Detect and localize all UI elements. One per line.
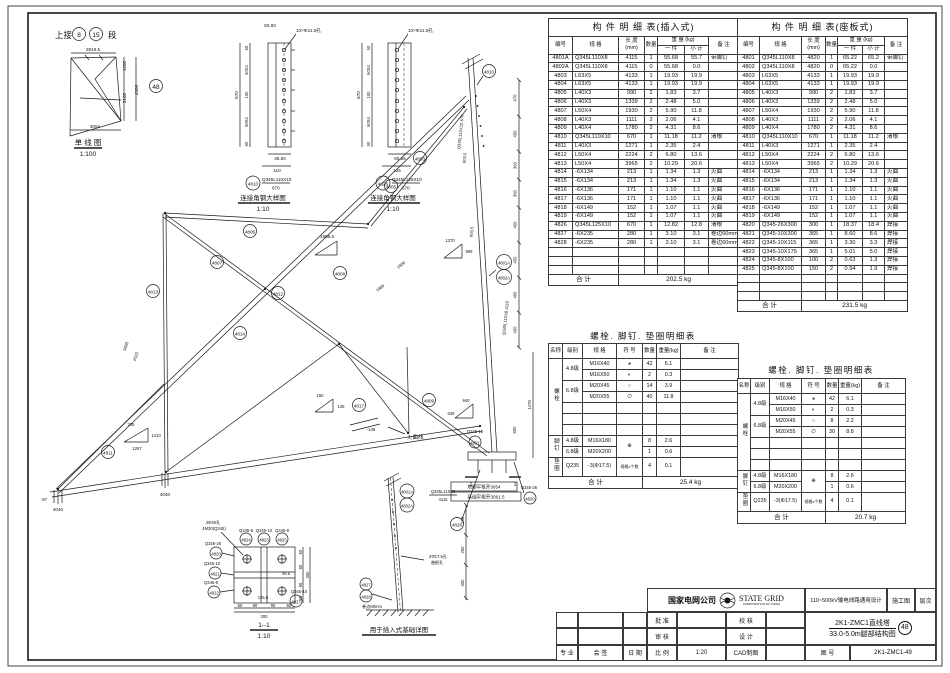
view-title: 单 线 图 <box>75 137 102 147</box>
svg-text:2Φ17.5孔: 2Φ17.5孔 <box>429 553 448 560</box>
table-row: 4806 L40X3 1339 2 2.48 5.0 <box>738 98 908 107</box>
bolt-symbol-icon: ○ <box>802 416 826 427</box>
foot-span-label: 塔脚平根开3054 <box>467 484 501 491</box>
cell-note: 火曲 <box>709 204 739 213</box>
svg-text:1869.5: 1869.5 <box>320 234 334 239</box>
svg-text:1800: 1800 <box>396 260 407 270</box>
table-row: 4801 Q345L110X8 4820 1 65.22 65.2 带脚钉 <box>738 54 908 63</box>
cell-note <box>709 142 739 151</box>
cell-weight-one: 18.37 <box>838 221 863 230</box>
svg-text:300: 300 <box>261 614 269 619</box>
cell-no: 4814 <box>738 168 760 177</box>
cell-weight-sub: 19.9 <box>685 72 709 81</box>
cell-note <box>709 63 739 72</box>
cell-qty: 1 <box>826 212 838 221</box>
review-label: 审 核 <box>647 628 677 644</box>
cell-note: 带脚钉 <box>885 54 908 63</box>
cell-no <box>738 283 760 292</box>
cell-qty: 1 <box>645 168 658 177</box>
table-row: 4817 -6X136 171 1 1.10 1.1 火曲 <box>549 195 739 204</box>
svg-text:Q345L110X8: Q345L110X8 <box>431 489 456 494</box>
cell-length: 4820 <box>802 63 826 72</box>
cell-spec: L40X4 <box>760 124 802 133</box>
cell-length: 3965 <box>619 160 645 169</box>
table-row: 4808 L40X3 1111 2 2.06 4.1 <box>738 116 908 125</box>
svg-text:60X4: 60X4 <box>244 116 249 126</box>
col-header: 规 格 <box>770 379 802 394</box>
cell-qty: 2 <box>645 107 658 116</box>
svg-text:4803: 4803 <box>415 157 426 162</box>
bolt-symbol-icon: ∅ <box>802 427 826 438</box>
cell-weight-sub: 11.8 <box>863 107 885 116</box>
cell-no: 4818 <box>738 204 760 213</box>
table-row: 4806 L40X3 1339 2 2.48 5.0 <box>549 98 739 107</box>
total-label: 合 计 <box>549 274 619 285</box>
cell-weight-one: 0.94 <box>838 265 863 274</box>
bolt-spec: M16X180 <box>583 436 617 447</box>
cell-note <box>709 248 739 257</box>
cell-qty: 2 <box>826 89 838 98</box>
cell-qty: 2 <box>645 160 658 169</box>
cell-length <box>619 248 645 257</box>
cell-weight-one: 0.63 <box>838 256 863 265</box>
svg-text:8: 8 <box>77 32 81 39</box>
cell-qty: 1 <box>645 239 658 248</box>
cell-weight-sub: 19.9 <box>863 80 885 89</box>
table-row: 4815 -6X134 213 1 1.34 1.3 火曲 <box>549 177 739 186</box>
cell-length <box>802 274 826 283</box>
cell-no: 4812 <box>738 151 760 160</box>
cell-spec: L50X4 <box>573 160 619 169</box>
cell-length: 1930 <box>619 107 645 116</box>
cell-length: 1780 <box>619 124 645 133</box>
table-row: 4802 Q345L110X8 4820 0 65.22 0.0 <box>738 63 908 72</box>
total-label: 合 计 <box>738 300 802 311</box>
table-row: 4809 L40X4 1780 2 4.31 8.6 <box>549 124 739 133</box>
svg-text:100: 100 <box>244 91 249 99</box>
svg-text:4814: 4814 <box>235 332 246 337</box>
cell-weight-sub: 1.1 <box>863 212 885 221</box>
cell-spec: -6X134 <box>760 168 802 177</box>
cell-weight-sub: 5.0 <box>863 248 885 257</box>
cell-weight-sub: 1.1 <box>685 186 709 195</box>
cell-note: 焊接 <box>885 248 908 257</box>
grade-68: 6.8级 <box>563 447 583 458</box>
cell-weight-one: 1.07 <box>838 204 863 213</box>
cell-no: 4807 <box>549 107 573 116</box>
svg-text:145: 145 <box>338 404 346 409</box>
cell-no: 4825 <box>738 265 760 274</box>
cell-weight-sub <box>863 283 885 292</box>
cell-note <box>885 151 908 160</box>
table-row: 4819 -6X149 152 1 1.07 1.1 火曲 <box>738 212 908 221</box>
foot-symbol-icon: ⊕ <box>802 471 826 493</box>
cell-length: 1271 <box>802 142 826 151</box>
sheet-label: 层次 <box>915 588 936 612</box>
svg-text:4828: 4828 <box>361 595 371 600</box>
cell-weight-one: 1.07 <box>658 204 685 213</box>
dim-label: 3054 <box>90 124 101 129</box>
cell-weight-one: 5.01 <box>838 248 863 257</box>
cell-length <box>619 256 645 265</box>
cell-qty: 1 <box>826 133 838 142</box>
cell-qty: 1 <box>826 221 838 230</box>
table-row: 4812 L50X4 2224 2 6.80 13.6 <box>549 151 739 160</box>
cell-weight-sub: 11.2 <box>685 133 709 142</box>
washer-grade: Q235 <box>563 458 583 477</box>
table-row: 4801A Q345L110X8 4115 1 55.68 55.7 带脚钉 <box>549 54 739 63</box>
cell-weight-sub: 1.1 <box>685 195 709 204</box>
cell-spec <box>573 256 619 265</box>
cell-no: 4810 <box>738 133 760 142</box>
svg-text:4825: 4825 <box>277 538 287 543</box>
cell-weight-sub: 1.1 <box>685 212 709 221</box>
cell-weight-sub <box>685 256 709 265</box>
table-row: 4817 -6X136 171 1 1.10 1.1 火曲 <box>738 195 908 204</box>
cell-note: 焊接 <box>885 230 908 239</box>
cell-weight-sub: 1.3 <box>685 168 709 177</box>
cell-length: 990 <box>802 89 826 98</box>
cell-weight-one: 10.29 <box>658 160 685 169</box>
cell-note <box>885 274 908 283</box>
cell-weight-one: 5.90 <box>838 107 863 116</box>
cell-weight-one: 2.06 <box>658 116 685 125</box>
cell-length: 4115 <box>619 54 645 63</box>
table-row: 4813 L50X4 3965 2 10.29 20.6 <box>549 160 739 169</box>
cell-note: 火曲 <box>709 168 739 177</box>
cell-weight-one: 11.18 <box>658 133 685 142</box>
group-bolt: 螺栓 <box>738 394 751 471</box>
cell-weight-sub: 1.1 <box>863 195 885 204</box>
parts-table-seat: 构 件 明 细 表(座板式) 编号 规 格 长 度(mm) 数量 重 量 (kg… <box>737 18 908 312</box>
cell-no: 4827 <box>549 230 573 239</box>
svg-text:639: 639 <box>448 411 456 416</box>
cell-spec: -6X136 <box>760 186 802 195</box>
washer-symbol: 规格x个数 <box>617 458 643 477</box>
cell-weight-sub: 5.0 <box>863 98 885 107</box>
cell-spec <box>573 248 619 257</box>
svg-text:600: 600 <box>512 426 517 434</box>
cell-qty <box>645 265 658 274</box>
cell-length: 4115 <box>619 63 645 72</box>
cell-no <box>549 265 573 274</box>
cell-weight-one: 1.07 <box>838 212 863 221</box>
group-foot: 脚钉 <box>549 436 563 458</box>
svg-text:4808: 4808 <box>335 272 346 277</box>
cell-note <box>709 80 739 89</box>
svg-text:670: 670 <box>234 91 239 99</box>
bolt-spec: M20X55 <box>583 392 617 403</box>
cell-no: 4818 <box>549 204 573 213</box>
cell-weight-one <box>838 292 863 301</box>
cell-note: 卷边60mm <box>709 230 739 239</box>
table-row: 4804 L63X5 4133 1 19.93 19.9 <box>738 80 908 89</box>
cell-note: 卷边60mm <box>709 239 739 248</box>
bolt-spec: M16X40 <box>583 359 617 370</box>
cell-length: 1339 <box>802 98 826 107</box>
cell-spec: L50X4 <box>760 151 802 160</box>
parts-seat-body: 4801 Q345L110X8 4820 1 65.22 65.2 带脚钉 48… <box>738 54 908 300</box>
cell-note <box>885 142 908 151</box>
cell-no: 4810 <box>549 133 573 142</box>
washer-spec: -3(Φ17.5) <box>770 493 802 512</box>
cell-weight-one <box>658 265 685 274</box>
col-header: 备 注 <box>681 344 739 359</box>
cell-spec: Q345-10X300 <box>760 230 802 239</box>
dim-label: 4040 <box>160 492 171 497</box>
svg-text:250: 250 <box>460 546 465 554</box>
svg-text:4821: 4821 <box>210 572 220 577</box>
cell-no: 4822 <box>738 239 760 248</box>
col-header: 长 度(mm) <box>802 37 826 55</box>
cell-spec: Q345-26X300 <box>760 221 802 230</box>
cell-note: 火曲 <box>885 204 908 213</box>
cell-qty: 1 <box>826 186 838 195</box>
cell-spec: Q345-10X175 <box>760 248 802 257</box>
cell-weight-one: 2.06 <box>838 116 863 125</box>
drawing-title-line2: 33.0-5.0m腿部结构图 <box>829 629 896 639</box>
cell-qty: 2 <box>826 160 838 169</box>
col-header: 规 格 <box>760 37 802 55</box>
svg-text:4823: 4823 <box>259 538 269 543</box>
cell-no: 4824 <box>738 256 760 265</box>
svg-text:60: 60 <box>238 603 243 608</box>
cell-spec: Q345L110X10 <box>573 133 619 142</box>
svg-text:50: 50 <box>366 141 371 146</box>
cell-spec: -6X134 <box>760 177 802 186</box>
cell-length: 4820 <box>802 54 826 63</box>
col-header: 符 号 <box>617 344 643 359</box>
cell-weight-sub: 2.4 <box>685 142 709 151</box>
cell-spec: L50X4 <box>573 151 619 160</box>
cell-note <box>885 283 908 292</box>
brand-subtitle: CORPORATION OF CHINA <box>739 603 784 606</box>
sheet-number-circle: 48 <box>898 621 912 635</box>
table-row: 4815 -6X134 213 1 1.34 1.3 火曲 <box>738 177 908 186</box>
cell-spec <box>760 274 802 283</box>
col-header: 级别 <box>563 344 583 359</box>
cell-length <box>619 265 645 274</box>
cell-spec: L50X4 <box>760 160 802 169</box>
cell-qty: 1 <box>826 248 838 257</box>
cell-weight-sub: 1.3 <box>863 256 885 265</box>
cell-qty: 1 <box>645 80 658 89</box>
table-row: 4802A Q345L110X8 4115 0 55.68 0.0 <box>549 63 739 72</box>
cell-no: 4815 <box>549 177 573 186</box>
cell-no: 4809 <box>738 124 760 133</box>
fire-bend-label: 火曲线 <box>407 433 424 441</box>
cell-length: 150 <box>802 265 826 274</box>
col-header: 规 格 <box>583 344 617 359</box>
svg-text:90: 90 <box>298 564 303 569</box>
svg-text:-138: -138 <box>367 427 376 432</box>
svg-text:60X4: 60X4 <box>244 64 249 74</box>
cell-qty: 1 <box>826 80 838 89</box>
cell-qty: 2 <box>826 116 838 125</box>
cell-weight-one: 5.90 <box>658 107 685 116</box>
cell-no: 4813 <box>738 160 760 169</box>
cell-weight-sub: 0.0 <box>863 63 885 72</box>
cell-qty: 2 <box>826 98 838 107</box>
cell-qty: 2 <box>826 107 838 116</box>
cell-no: 4817 <box>738 195 760 204</box>
col-header: 重量(kg) <box>657 344 681 359</box>
check-label: 校 核 <box>726 612 766 628</box>
cell-spec: Q345L110X8 <box>760 63 802 72</box>
bolt-spec: M20X200 <box>583 447 617 458</box>
cell-weight-one: 2.48 <box>838 98 863 107</box>
table-row: 4816 -6X136 171 1 1.10 1.1 火曲 <box>549 186 739 195</box>
date-label: 日 期 <box>623 645 647 661</box>
total-value: 20.7 kg <box>826 511 906 523</box>
cell-spec: -6X235 <box>573 239 619 248</box>
svg-text:4Φ40孔: 4Φ40孔 <box>206 519 221 526</box>
cell-qty: 0 <box>645 63 658 72</box>
roll-edge-label: 卷边60mm <box>362 603 383 610</box>
table-row: 4803 L63X5 4133 1 19.93 19.9 <box>738 72 908 81</box>
svg-text:48: 48 <box>152 84 160 91</box>
cell-length: 300 <box>802 221 826 230</box>
table-row: 4824 Q345-8X100 100 2 0.63 1.3 焊接 <box>738 256 908 265</box>
bolt-spec: M16X50 <box>583 370 617 381</box>
svg-text:4812: 4812 <box>273 292 284 297</box>
state-grid-logo <box>719 592 736 609</box>
svg-text:Q345-26: Q345-26 <box>205 541 222 546</box>
cell-no: 4813 <box>549 160 573 169</box>
cell-note: 火曲 <box>709 195 739 204</box>
svg-text:50: 50 <box>244 45 249 50</box>
bolt-table-title: 螺栓. 脚钉. 垫圈明细表 <box>548 330 738 342</box>
cell-no: 4802 <box>738 63 760 72</box>
cell-spec: L63X5 <box>760 72 802 81</box>
col-header: 名称 <box>738 379 751 394</box>
svg-text:450: 450 <box>513 130 518 138</box>
cell-note <box>709 256 739 265</box>
cell-weight-one: 55.68 <box>658 54 685 63</box>
cell-weight-one: 4.31 <box>658 124 685 133</box>
hole-note: 10×Φ21.5孔 <box>408 27 433 34</box>
cell-weight-sub: 1.9 <box>863 265 885 274</box>
cell-weight-sub: 8.6 <box>863 124 885 133</box>
cell-qty: 1 <box>645 133 658 142</box>
parts-table-insert: 构 件 明 细 表(插入式) 编号 规 格 长 度(mm) 数量 重 量 (kg… <box>548 18 739 286</box>
cell-note: 焊接 <box>885 239 908 248</box>
cell-length: 365 <box>802 239 826 248</box>
cell-weight-one <box>658 256 685 265</box>
drawing-title-cell: 2K1-ZMC1直线塔 33.0-5.0m腿部结构图 48 <box>805 612 936 645</box>
cell-length: 4133 <box>619 80 645 89</box>
svg-text:4820: 4820 <box>211 552 221 557</box>
cell-note: 焊接 <box>885 265 908 274</box>
cell-weight-one: 2.35 <box>658 142 685 151</box>
washer-symbol: 规格x个数 <box>802 493 826 512</box>
cell-no: 4803 <box>549 72 573 81</box>
cell-length: 1111 <box>619 116 645 125</box>
cell-length: 4133 <box>802 72 826 81</box>
cell-qty: 1 <box>826 142 838 151</box>
cell-no: 4805 <box>738 89 760 98</box>
cell-weight-one: 19.93 <box>658 80 685 89</box>
svg-text:125.5: 125.5 <box>258 595 269 600</box>
svg-text:36.5: 36.5 <box>282 571 291 576</box>
cell-weight-sub: 3.1 <box>685 230 709 239</box>
cell-note <box>709 160 739 169</box>
table-row: 4828 -6X235 280 1 3.10 3.1 卷边60mm <box>549 239 739 248</box>
svg-text:60: 60 <box>298 549 303 554</box>
cell-length: 4133 <box>802 80 826 89</box>
cell-qty: 2 <box>645 89 658 98</box>
svg-text:4802A: 4802A <box>498 276 510 281</box>
cell-weight-one: 55.68 <box>658 63 685 72</box>
cell-weight-sub: 1.1 <box>863 204 885 213</box>
cell-weight-one: 3.10 <box>658 230 685 239</box>
table-row <box>549 256 739 265</box>
dim-label: 2819.5 <box>86 47 100 52</box>
cell-spec: -6X149 <box>760 204 802 213</box>
cell-weight-sub <box>685 248 709 257</box>
cell-note <box>885 107 908 116</box>
cell-no <box>549 256 573 265</box>
cell-no: 4809 <box>549 124 573 133</box>
cell-no: 4821 <box>738 230 760 239</box>
cell-note: 火曲 <box>885 168 908 177</box>
dim-label: 4040 <box>53 507 64 512</box>
svg-text:150: 150 <box>317 393 325 398</box>
cell-spec: -6X136 <box>760 195 802 204</box>
table-row: 4805 L40X3 990 2 1.83 3.7 <box>738 89 908 98</box>
table-row: 4818 -6X149 152 1 1.07 1.1 火曲 <box>549 204 739 213</box>
cell-length: 670 <box>802 133 826 142</box>
svg-text:4809: 4809 <box>424 399 435 404</box>
svg-text:Q345-8: Q345-8 <box>239 528 254 533</box>
cell-length: 1780 <box>802 124 826 133</box>
cell-note <box>709 124 739 133</box>
scale-value: 1:20 <box>677 645 726 661</box>
svg-text:4801A: 4801A <box>498 261 510 266</box>
cell-qty: 1 <box>645 204 658 213</box>
cad-label: CAD制图 <box>726 645 766 661</box>
table-row: 4812 L50X4 2224 2 6.80 13.6 <box>738 151 908 160</box>
view-scale: 1:10 <box>258 633 271 640</box>
cell-qty <box>826 283 838 292</box>
cell-length: 100 <box>802 256 826 265</box>
cell-length: 365 <box>802 248 826 257</box>
table-row: 4816 -6X136 171 1 1.10 1.1 火曲 <box>738 186 908 195</box>
cell-weight-one: 12.82 <box>658 221 685 230</box>
col-header: 级别 <box>751 379 770 394</box>
svg-text:Q345-10: Q345-10 <box>467 429 484 434</box>
svg-text:450: 450 <box>513 221 518 229</box>
cell-no <box>738 292 760 301</box>
cell-weight-one: 1.34 <box>838 177 863 186</box>
table-row: 4811 L40X3 1271 1 2.35 2.4 <box>549 142 739 151</box>
cell-length: 280 <box>619 230 645 239</box>
cell-qty: 1 <box>826 168 838 177</box>
svg-text:1267: 1267 <box>132 446 142 451</box>
drawing-no-value: 2K1-ZMC1-49 <box>850 645 936 661</box>
cell-no: 4801A <box>549 54 573 63</box>
cell-note <box>885 116 908 125</box>
bolt-spec: M16X50 <box>770 405 802 416</box>
grade-68: 6.8级 <box>563 381 583 403</box>
svg-text:Q345-10: Q345-10 <box>204 561 221 566</box>
cell-spec: Q345L110X8 <box>760 54 802 63</box>
table-row: 4803 L63X5 4133 1 19.93 19.9 <box>549 72 739 81</box>
connect-note: 上接 <box>55 30 73 40</box>
table-row <box>738 274 908 283</box>
table-row: 4818 -6X149 152 1 1.07 1.1 火曲 <box>738 204 908 213</box>
cell-note: 带脚钉 <box>709 54 739 63</box>
